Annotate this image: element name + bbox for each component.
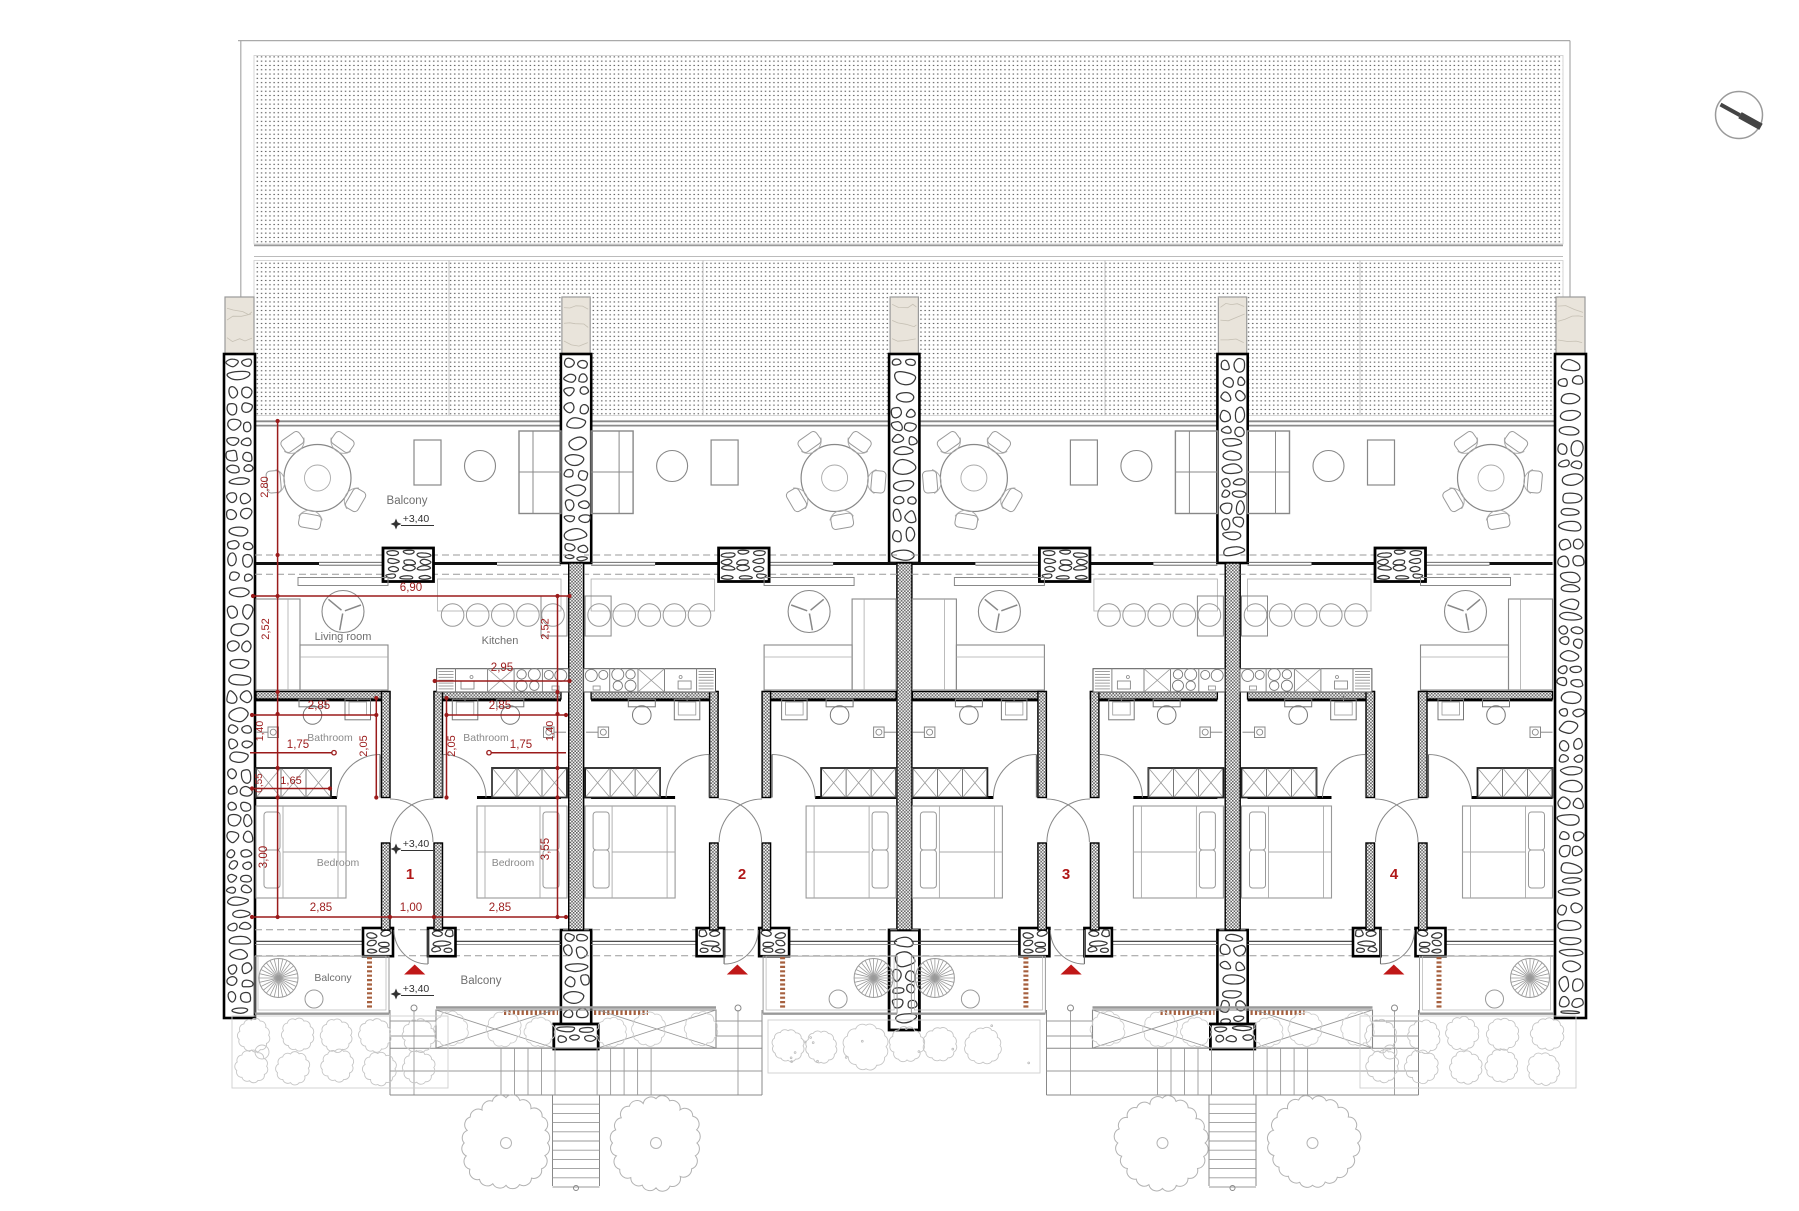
svg-text:4: 4 — [1390, 866, 1399, 883]
svg-text:2,95: 2,95 — [491, 662, 513, 674]
svg-text:Bedroom: Bedroom — [492, 857, 535, 869]
svg-text:2,05: 2,05 — [358, 735, 370, 756]
svg-text:2,85: 2,85 — [308, 700, 330, 712]
svg-text:2,85: 2,85 — [489, 902, 511, 914]
svg-text:1,00: 1,00 — [400, 902, 422, 914]
svg-text:2,52: 2,52 — [540, 618, 552, 639]
svg-text:2,05: 2,05 — [446, 735, 458, 756]
svg-text:+3,40: +3,40 — [403, 983, 430, 995]
svg-text:2,52: 2,52 — [260, 618, 272, 639]
svg-text:Balcony: Balcony — [461, 975, 502, 987]
svg-text:Bedroom: Bedroom — [317, 857, 360, 869]
svg-text:1,40: 1,40 — [254, 721, 266, 742]
svg-text:Living room: Living room — [315, 631, 372, 643]
svg-text:3,55: 3,55 — [540, 838, 552, 860]
svg-text:2,85: 2,85 — [310, 902, 332, 914]
svg-text:0,55: 0,55 — [254, 773, 265, 793]
svg-text:1,40: 1,40 — [544, 721, 556, 742]
svg-text:2: 2 — [738, 866, 746, 883]
svg-text:3,00: 3,00 — [258, 846, 270, 868]
svg-text:Bathroom: Bathroom — [307, 732, 353, 744]
svg-text:2,85: 2,85 — [489, 700, 511, 712]
svg-text:1,75: 1,75 — [287, 739, 309, 751]
svg-text:Balcony: Balcony — [314, 972, 352, 984]
svg-text:6,90: 6,90 — [400, 582, 422, 594]
svg-text:+3,40: +3,40 — [403, 513, 430, 525]
svg-text:3: 3 — [1062, 866, 1070, 883]
svg-text:1,75: 1,75 — [510, 739, 532, 751]
svg-text:Balcony: Balcony — [387, 495, 428, 507]
svg-text:2,80: 2,80 — [259, 476, 271, 497]
svg-text:+3,40: +3,40 — [403, 838, 430, 850]
svg-text:Kitchen: Kitchen — [482, 635, 519, 647]
svg-text:Bathroom: Bathroom — [463, 732, 509, 744]
svg-text:1: 1 — [406, 866, 414, 883]
svg-text:1,65: 1,65 — [280, 775, 301, 787]
